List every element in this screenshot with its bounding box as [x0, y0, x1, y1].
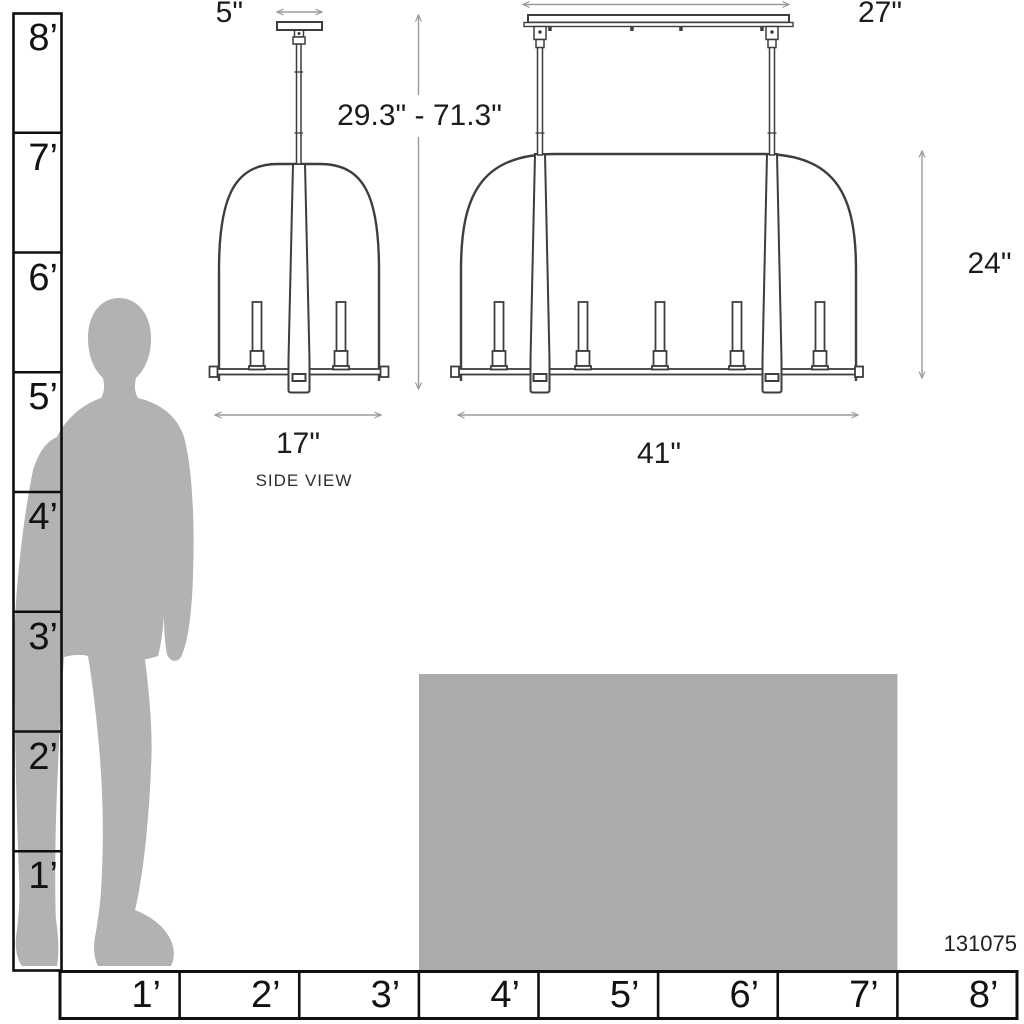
dim-label-front-canopy-width: 27" — [843, 0, 917, 30]
front-view-drawing — [451, 15, 863, 393]
vruler-label-1ft: 1’ — [13, 856, 58, 896]
front-candle-1 — [491, 302, 507, 370]
front-canopy-flange — [524, 23, 793, 27]
side-candle-1 — [249, 302, 265, 370]
dim-label-hanging-height-range: 29.3" - 71.3" — [319, 95, 520, 137]
front-stem-right-slot — [766, 374, 779, 381]
side-downrod — [297, 44, 302, 164]
front-stem-left — [531, 154, 550, 393]
front-bar-endcap-right — [855, 367, 863, 378]
side-center-stem — [289, 164, 310, 393]
product-id: 131075 — [897, 931, 1017, 957]
side-bar-endcap-right — [381, 367, 389, 378]
side-stem-slot — [293, 374, 306, 381]
front-candle-2 — [575, 302, 591, 370]
hruler-label-2ft: 2’ — [180, 974, 281, 1016]
island-block — [419, 674, 897, 971]
hruler-label-6ft: 6’ — [658, 974, 759, 1016]
front-hanger-left — [534, 27, 546, 48]
side-bar-endcap-left — [210, 367, 218, 378]
side-view-caption: SIDE VIEW — [224, 471, 384, 491]
dim-label-fixture-height: 24" — [950, 247, 1024, 281]
hruler-label-3ft: 3’ — [299, 974, 400, 1016]
front-downrod-left — [538, 47, 543, 155]
dim-label-side-canopy-width: 5" — [170, 0, 243, 30]
front-bar-endcap-left — [451, 367, 459, 378]
dim-label-side-width: 17" — [248, 427, 348, 461]
front-stem-left-slot — [534, 374, 547, 381]
vruler-label-8ft: 8’ — [13, 18, 58, 58]
front-candle-4 — [729, 302, 745, 370]
front-stem-right — [763, 154, 782, 393]
diagram-canvas — [0, 0, 1024, 1024]
front-candle-3 — [652, 302, 668, 370]
hruler-label-4ft: 4’ — [419, 974, 520, 1016]
hruler-label-1ft: 1’ — [60, 974, 161, 1016]
island-rectangle — [419, 674, 897, 971]
dim-label-front-width: 41" — [609, 437, 709, 471]
hruler-label-7ft: 7’ — [778, 974, 879, 1016]
front-canopy — [528, 15, 789, 23]
vruler-label-3ft: 3’ — [13, 617, 58, 657]
vruler-label-2ft: 2’ — [13, 737, 58, 777]
front-downrod-right — [770, 47, 775, 155]
dimension-diagram: 8’ 7’ 6’ 5’ 4’ 3’ 2’ 1’ 1’ 2’ 3’ 4’ 5’ 6… — [0, 0, 1024, 1024]
side-view-drawing — [210, 22, 389, 393]
side-canopy — [277, 22, 322, 30]
hruler-label-8ft: 8’ — [897, 974, 998, 1016]
front-hanger-right — [766, 27, 778, 48]
vruler-label-7ft: 7’ — [13, 138, 58, 178]
front-candle-5 — [812, 302, 828, 370]
side-candle-2 — [333, 302, 349, 370]
hruler-label-5ft: 5’ — [539, 974, 640, 1016]
vruler-label-6ft: 6’ — [13, 258, 58, 298]
vruler-label-5ft: 5’ — [13, 377, 58, 417]
vruler-label-4ft: 4’ — [13, 497, 58, 537]
